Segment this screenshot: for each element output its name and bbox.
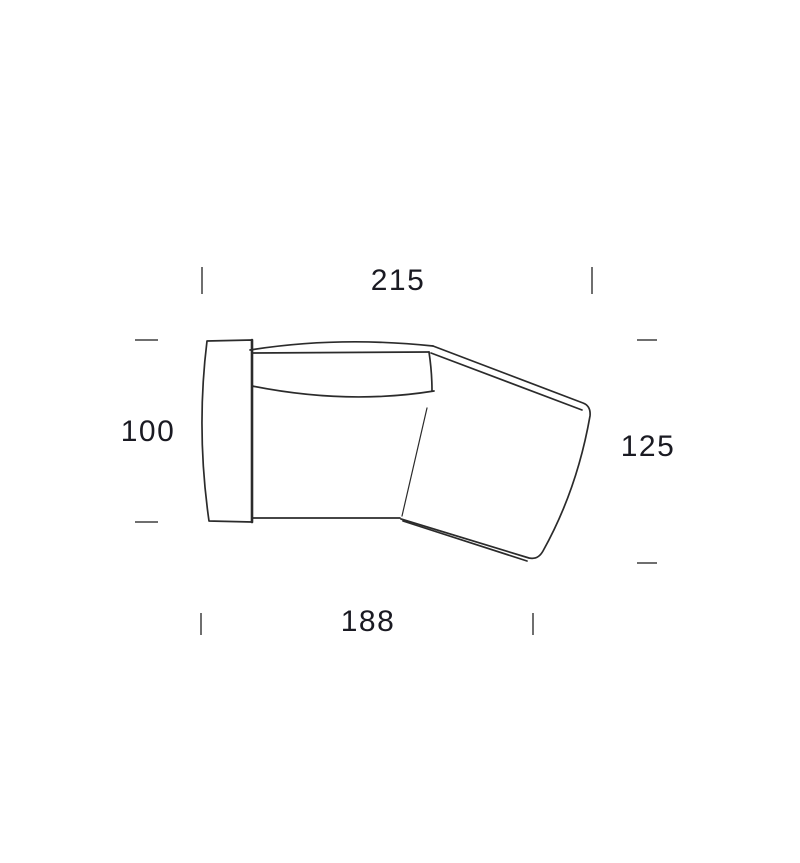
dimension-label-depth-left: 100 (103, 416, 193, 448)
dimension-label-width-bottom: 188 (308, 606, 428, 638)
backrest-top-line (253, 352, 429, 353)
furniture-outline-group (202, 340, 590, 561)
angled-bottom-inner-line (403, 521, 527, 561)
seat-division-line (402, 408, 427, 516)
backrest-right-edge (429, 352, 432, 391)
dimension-label-depth-right: 125 (603, 431, 693, 463)
angled-top-inner-line (431, 353, 582, 410)
backrest-top-arc (250, 342, 433, 350)
dimension-label-width-top: 215 (338, 265, 458, 297)
armrest-outline (202, 340, 252, 522)
dimension-ticks-group (135, 267, 657, 635)
backrest-bottom-arc (252, 386, 434, 397)
technical-drawing-page: 215 100 125 188 (0, 0, 800, 863)
